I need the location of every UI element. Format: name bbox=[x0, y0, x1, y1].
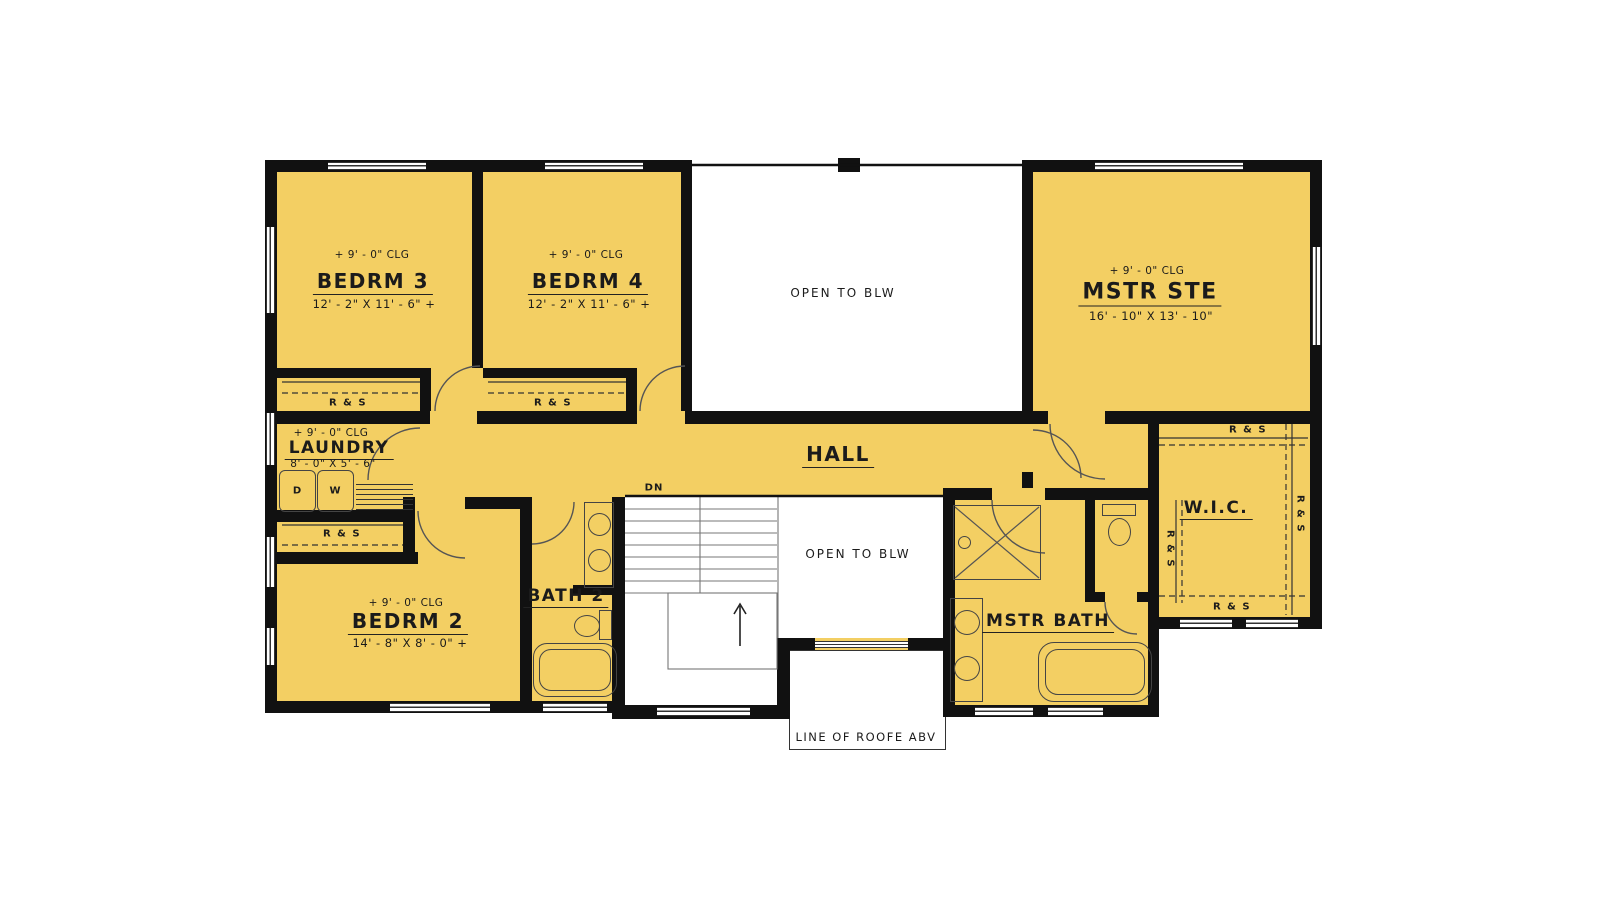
wic-rs-right-label: R & S bbox=[1295, 495, 1306, 533]
bath2-tub-inner bbox=[539, 649, 611, 691]
bedrm3-dims-label: 12' - 2" X 11' - 6" + bbox=[313, 297, 436, 311]
bedrm4-ceiling-label: + 9' - 0" CLG bbox=[549, 249, 624, 261]
mstr-ste-dims-label: 16' - 10" X 13' - 10" bbox=[1089, 309, 1213, 323]
laundry-room-label: LAUNDRY bbox=[285, 438, 394, 460]
bedrm4-dims-label: 12' - 2" X 11' - 6" + bbox=[528, 297, 651, 311]
wic-rs-bottom-label: R & S bbox=[1213, 602, 1251, 613]
laundry-closet-rs-label: R & S bbox=[323, 529, 361, 540]
door-arc bbox=[1033, 430, 1081, 478]
wic-room-label: W.I.C. bbox=[1180, 498, 1253, 520]
wc-toilet-tank bbox=[1102, 504, 1136, 516]
bedrm4-room-label: BEDRM 4 bbox=[528, 269, 648, 295]
bedrm4-closet-rs-label: R & S bbox=[534, 398, 572, 409]
roof-line-label: LINE OF ROOFE ABV bbox=[795, 730, 936, 744]
mstr-ste-ceiling-label: + 9' - 0" CLG bbox=[1110, 265, 1185, 277]
wic-rs-left-label: R & S bbox=[1165, 530, 1176, 568]
open-to-below-mid-label: OPEN TO BLW bbox=[805, 547, 910, 561]
washer-label: W bbox=[329, 486, 340, 497]
stairs-down-label: DN bbox=[645, 483, 664, 494]
dryer-label: D bbox=[293, 486, 301, 497]
floor-plan: + 9' - 0" CLG BEDRM 3 12' - 2" X 11' - 6… bbox=[0, 0, 1600, 900]
bedrm3-ceiling-label: + 9' - 0" CLG bbox=[335, 249, 410, 261]
door-arc bbox=[1050, 424, 1105, 479]
bath2-toilet-tank bbox=[599, 610, 612, 640]
mstr-bath-room-label: MSTR BATH bbox=[982, 611, 1114, 633]
closet-shelf-lines bbox=[282, 382, 1308, 615]
bath2-room-label: BATH 2 bbox=[523, 586, 608, 608]
laundry-shelf-hatch bbox=[356, 484, 413, 511]
bath2-sink bbox=[588, 513, 611, 536]
open-to-below-top-label: OPEN TO BLW bbox=[790, 286, 895, 300]
door-arc bbox=[435, 366, 480, 411]
bedrm3-room-label: BEDRM 3 bbox=[313, 269, 433, 295]
hall-room-label: HALL bbox=[802, 442, 874, 468]
mstr-shower-drain bbox=[958, 536, 971, 549]
bedrm2-ceiling-label: + 9' - 0" CLG bbox=[369, 597, 444, 609]
laundry-dims-label: 8' - 0" X 5' - 6" bbox=[290, 458, 375, 470]
mstr-tub-inner bbox=[1045, 649, 1145, 695]
stair-direction-arrow bbox=[734, 604, 746, 646]
stair-landing bbox=[668, 593, 777, 669]
door-arc bbox=[640, 366, 685, 411]
bedrm2-dims-label: 14' - 8" X 8' - 0" + bbox=[353, 636, 468, 650]
bedrm3-closet-rs-label: R & S bbox=[329, 398, 367, 409]
stair-treads bbox=[625, 497, 778, 638]
door-arc bbox=[418, 511, 465, 558]
mstr-sink bbox=[954, 656, 980, 681]
wic-rs-top-label: R & S bbox=[1229, 425, 1267, 436]
bath2-sink bbox=[588, 549, 611, 572]
wc-toilet-bowl bbox=[1108, 518, 1131, 546]
bath2-toilet-bowl bbox=[574, 615, 600, 637]
mstr-ste-room-label: MSTR STE bbox=[1078, 280, 1221, 307]
door-arc bbox=[532, 502, 574, 544]
bedrm2-room-label: BEDRM 2 bbox=[348, 609, 468, 635]
plan-linework bbox=[0, 0, 1600, 900]
mstr-sink bbox=[954, 610, 980, 635]
